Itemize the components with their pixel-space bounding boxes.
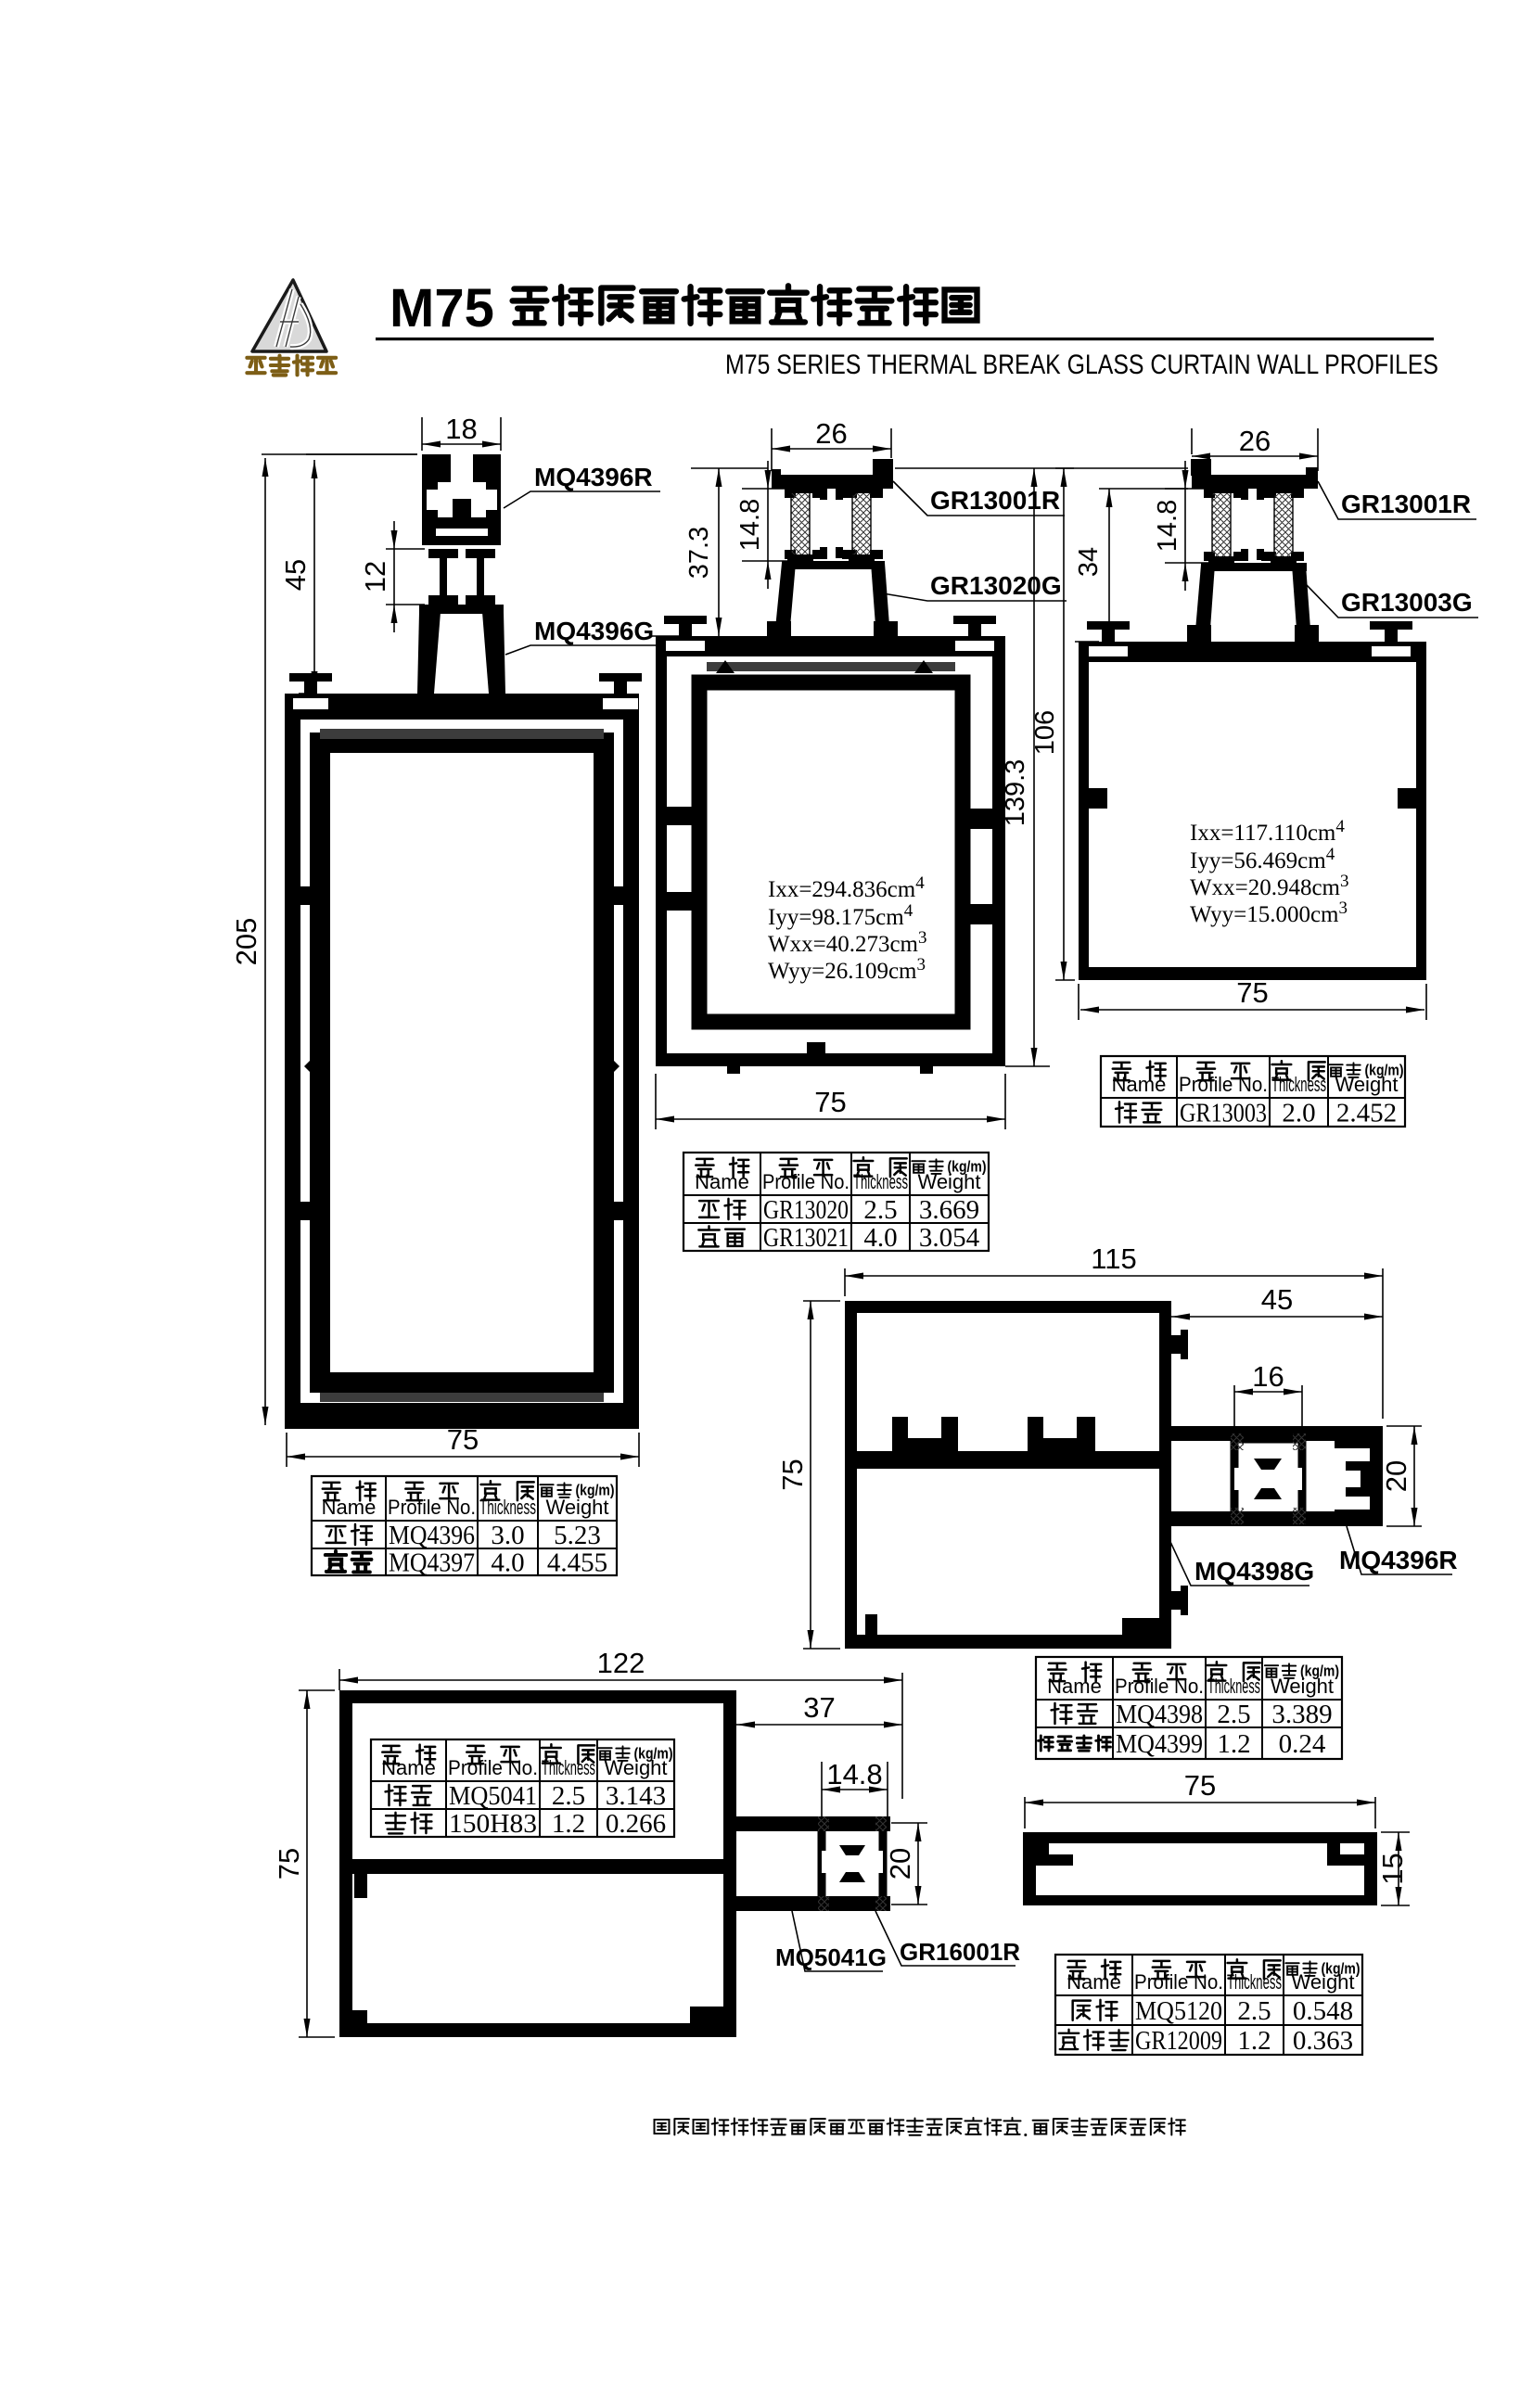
svg-text:MQ4396R: MQ4396R [534, 463, 653, 491]
svg-text:3.0: 3.0 [491, 1521, 524, 1550]
svg-text:Wxx=40.273cm3: Wxx=40.273cm3 [768, 928, 927, 957]
svg-text:MQ4396R: MQ4396R [1339, 1546, 1458, 1574]
svg-text:20: 20 [1380, 1460, 1412, 1492]
svg-text:3.669: 3.669 [919, 1195, 979, 1225]
svg-text:3.143: 3.143 [606, 1781, 666, 1811]
svg-text:Name: Name [1047, 1675, 1102, 1698]
svg-text:Thickness: Thickness [1227, 1970, 1282, 1994]
svg-text:150H83: 150H83 [449, 1809, 537, 1839]
svg-text:0.266: 0.266 [606, 1809, 666, 1839]
svg-text:MQ4397: MQ4397 [389, 1548, 475, 1578]
svg-text:26: 26 [815, 417, 847, 450]
svg-text:14.8: 14.8 [826, 1758, 882, 1790]
svg-text:M75 SERIES THERMAL BREAK GLASS: M75 SERIES THERMAL BREAK GLASS CURTAIN W… [725, 350, 1438, 380]
svg-text:GR13020: GR13020 [763, 1195, 849, 1225]
svg-text:Profile No.: Profile No. [1134, 1970, 1223, 1994]
svg-text:16: 16 [1252, 1360, 1284, 1393]
svg-text:MQ4399: MQ4399 [1116, 1729, 1203, 1759]
svg-text:37.3: 37.3 [684, 527, 714, 579]
svg-text:75: 75 [1236, 976, 1268, 1009]
svg-text:GR13001R: GR13001R [1341, 490, 1471, 518]
svg-text:Wyy=26.109cm3: Wyy=26.109cm3 [768, 955, 926, 984]
svg-text:GR13001R: GR13001R [930, 486, 1060, 515]
svg-text:1.2: 1.2 [1237, 2026, 1271, 2056]
svg-text:4.0: 4.0 [491, 1548, 524, 1578]
svg-text:Iyy=98.175cm4: Iyy=98.175cm4 [768, 901, 913, 930]
svg-text:Weight: Weight [1271, 1675, 1334, 1698]
svg-text:0.548: 0.548 [1293, 1996, 1353, 2026]
svg-text:1.2: 1.2 [1217, 1729, 1250, 1759]
svg-text:2.0: 2.0 [1282, 1099, 1315, 1128]
svg-text:Weight: Weight [917, 1170, 980, 1193]
svg-text:Thickness: Thickness [1207, 1675, 1260, 1698]
svg-text:MQ4398G: MQ4398G [1194, 1557, 1314, 1586]
svg-text:Profile No.: Profile No. [1179, 1073, 1268, 1096]
svg-text:GR16001R: GR16001R [900, 1938, 1020, 1966]
svg-text:115: 115 [1091, 1242, 1136, 1275]
svg-text:GR13003: GR13003 [1180, 1099, 1267, 1128]
svg-text:Weight: Weight [604, 1756, 667, 1779]
svg-text:MQ5120: MQ5120 [1135, 1996, 1222, 2026]
svg-text:GR12009: GR12009 [1135, 2026, 1222, 2056]
svg-text:14.8: 14.8 [735, 499, 765, 551]
svg-text:Thickness: Thickness [542, 1756, 595, 1779]
svg-text:3.054: 3.054 [919, 1223, 980, 1253]
svg-text:122: 122 [597, 1647, 645, 1679]
svg-text:Name: Name [322, 1496, 377, 1519]
svg-text:Profile No.: Profile No. [762, 1170, 850, 1193]
svg-text:37: 37 [803, 1691, 835, 1724]
svg-text:0.24: 0.24 [1279, 1729, 1326, 1759]
svg-text:45: 45 [279, 559, 312, 591]
svg-text:GR13003G: GR13003G [1341, 588, 1473, 617]
svg-text:2.5: 2.5 [1237, 1996, 1271, 2026]
svg-text:14.8: 14.8 [1153, 500, 1182, 552]
svg-text:75: 75 [776, 1459, 809, 1490]
svg-text:Wxx=20.948cm3: Wxx=20.948cm3 [1190, 872, 1349, 900]
svg-text:Weight: Weight [1291, 1970, 1354, 1994]
svg-text:2.452: 2.452 [1336, 1099, 1397, 1128]
svg-text:26: 26 [1239, 425, 1271, 457]
svg-text:GR13020G: GR13020G [930, 571, 1062, 600]
svg-text:Iyy=56.469cm4: Iyy=56.469cm4 [1190, 845, 1335, 873]
svg-text:Wyy=15.000cm3: Wyy=15.000cm3 [1190, 898, 1348, 927]
svg-text:2.5: 2.5 [1217, 1700, 1250, 1729]
svg-text:Weight: Weight [1335, 1073, 1398, 1096]
svg-text:MQ5041: MQ5041 [449, 1781, 537, 1811]
svg-text:75: 75 [273, 1848, 305, 1879]
svg-text:18: 18 [445, 413, 477, 445]
svg-text:MQ4396: MQ4396 [389, 1521, 475, 1550]
svg-text:1.2: 1.2 [552, 1809, 585, 1839]
svg-text:4.0: 4.0 [863, 1223, 897, 1253]
svg-text:3.389: 3.389 [1271, 1700, 1332, 1729]
svg-text:2.5: 2.5 [552, 1781, 585, 1811]
svg-text:Name: Name [1112, 1073, 1167, 1096]
svg-text:75: 75 [447, 1423, 479, 1456]
svg-text:75: 75 [1184, 1769, 1216, 1802]
svg-text:106: 106 [1030, 710, 1060, 755]
svg-text:MQ4398: MQ4398 [1116, 1700, 1203, 1729]
svg-text:Thickness: Thickness [479, 1496, 536, 1519]
svg-text:Ixx=117.110cm4: Ixx=117.110cm4 [1190, 817, 1345, 846]
svg-text:M75: M75 [390, 278, 494, 338]
svg-text:Name: Name [695, 1170, 749, 1193]
svg-text:139.3: 139.3 [1001, 759, 1030, 827]
svg-text:75: 75 [814, 1086, 846, 1118]
svg-text:GR13021: GR13021 [763, 1223, 849, 1253]
svg-text:Name: Name [381, 1756, 436, 1779]
svg-text:Name: Name [1067, 1970, 1121, 1994]
svg-text:Ixx=294.836cm4: Ixx=294.836cm4 [768, 873, 925, 902]
svg-text:5.23: 5.23 [554, 1521, 601, 1550]
svg-text:Profile No.: Profile No. [448, 1756, 538, 1779]
svg-text:34: 34 [1074, 547, 1104, 577]
svg-text:Profile No.: Profile No. [1115, 1675, 1204, 1698]
svg-text:205: 205 [230, 918, 262, 966]
svg-text:20: 20 [884, 1848, 916, 1879]
svg-text:2.5: 2.5 [863, 1195, 897, 1225]
svg-text:4.455: 4.455 [547, 1548, 607, 1578]
svg-text:12: 12 [359, 561, 391, 592]
svg-text:Weight: Weight [545, 1496, 608, 1519]
svg-text:15: 15 [1376, 1853, 1409, 1884]
svg-text:MQ4396G: MQ4396G [534, 617, 654, 645]
svg-text:Profile No.: Profile No. [388, 1496, 476, 1519]
svg-text:MQ5041G: MQ5041G [775, 1943, 887, 1971]
svg-text:Thickness: Thickness [1271, 1073, 1326, 1096]
svg-text:45: 45 [1261, 1283, 1293, 1316]
svg-text:0.363: 0.363 [1293, 2026, 1353, 2056]
svg-text:Thickness: Thickness [853, 1170, 908, 1193]
